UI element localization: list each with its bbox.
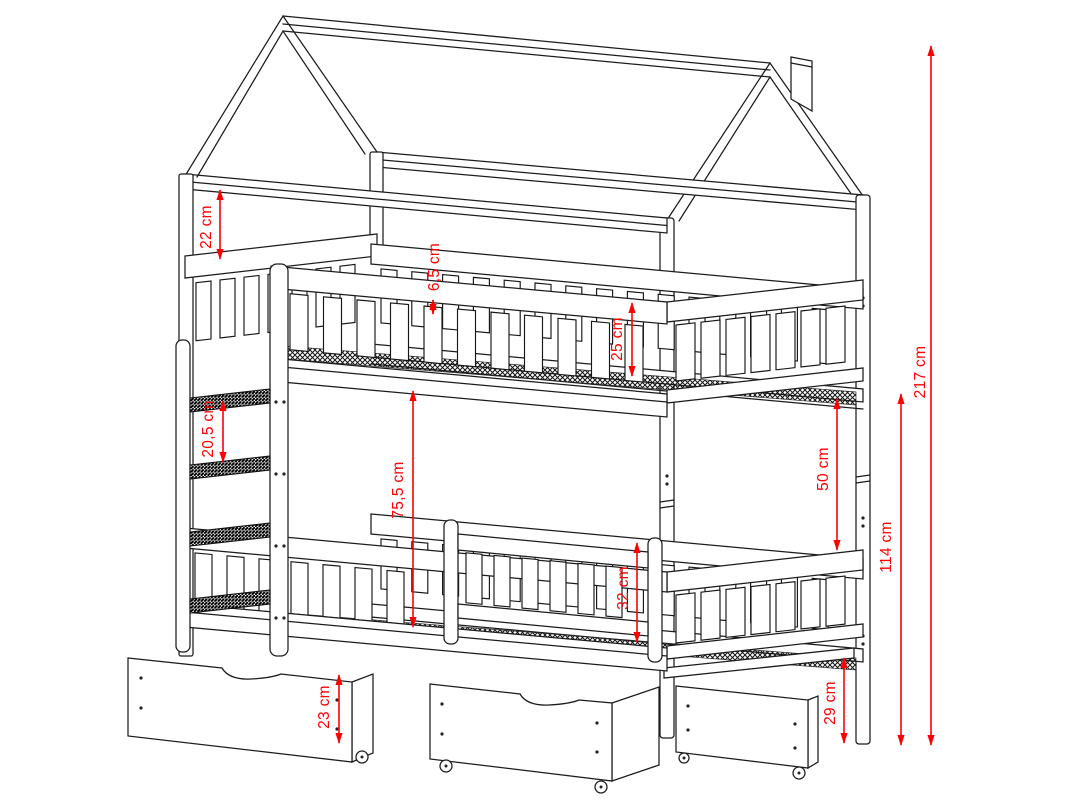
dimension-label-bunk-clearance: 75,5 cm: [390, 461, 407, 518]
dimension-total-height: 217 cm: [912, 45, 935, 746]
bed-line-art: [128, 16, 870, 793]
dimension-upper-to-lower-gap: 50 cm: [815, 398, 841, 551]
dimension-label-headboard-panel-height: 22 cm: [198, 205, 215, 249]
upper-bunk: [196, 244, 863, 417]
dimension-label-upper-to-lower-gap: 50 cm: [815, 447, 832, 491]
drawer-right: [430, 684, 659, 793]
dimension-headboard-panel-height: 22 cm: [198, 189, 224, 260]
bunk-bed-illustration: 22 cm6,5 cm25 cm20,5 cm75,5 cm50 cm32 cm…: [0, 0, 1081, 810]
dimension-top-rail-width: 6,5 cm: [426, 243, 443, 315]
dimension-label-ladder-rung-spacing: 20,5 cm: [200, 400, 217, 457]
dimension-label-top-rail-width: 6,5 cm: [426, 243, 443, 291]
dimension-label-upper-guardrail-height: 25 cm: [609, 317, 626, 361]
dimension-label-under-bed-clearance: 29 cm: [822, 681, 839, 725]
dimension-label-total-height: 217 cm: [912, 346, 929, 399]
drawer-left: [128, 658, 373, 763]
dimension-lower-structure-height: 114 cm: [878, 393, 905, 746]
drawer-back: [676, 686, 818, 779]
technical-drawing-page: 22 cm6,5 cm25 cm20,5 cm75,5 cm50 cm32 cm…: [0, 0, 1081, 810]
dimension-label-lower-structure-height: 114 cm: [878, 521, 895, 572]
dimension-label-drawer-height: 23 cm: [316, 685, 333, 729]
dimension-ladder-rung-spacing: 20,5 cm: [200, 400, 227, 463]
chimney: [791, 57, 812, 111]
dimension-label-lower-guardrail-height: 32 cm: [615, 566, 632, 610]
dimension-under-bed-clearance: 29 cm: [822, 657, 848, 744]
